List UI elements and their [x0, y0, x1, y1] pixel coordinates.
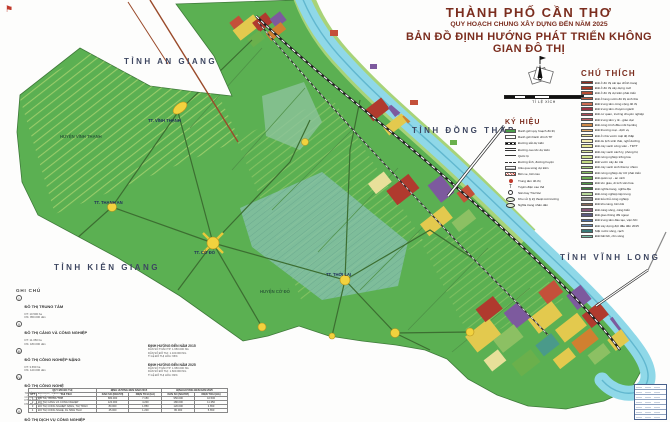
symbol-swatch-icon [505, 172, 516, 176]
symbol-item-label: Khu xử lý kỹ thuật môi trường [518, 197, 559, 201]
legend-item-label: Đất trung tâm y tế - giáo dục [595, 118, 634, 122]
legend-swatch [581, 81, 593, 85]
symbol-swatch-icon [505, 135, 516, 139]
table-row: 4 ĐÔ THỊ CÔNG NGHỆ, DL SINH THÁI 45.000 … [29, 409, 228, 413]
legend-item-label: Đất cây xanh cách ly, phòng hộ [595, 150, 638, 154]
legend-item-label: Đất ở đô thị cải tạo chỉnh trang [595, 81, 637, 85]
legend-swatch [581, 118, 593, 122]
legend-swatch [581, 144, 593, 148]
legend-item-label: Đất ở đô thị xây dựng mới [595, 86, 631, 90]
north-arrow-icon [508, 54, 572, 94]
legend-swatch [581, 86, 593, 90]
direction-block: ĐỊNH HƯỚNG ĐẾN NĂM 2025 DÂN SỐ TOÀN TP: … [148, 363, 236, 378]
legend-swatch [581, 197, 593, 201]
label-huyen-co-do: HUYỆN CỜ ĐỎ [260, 289, 291, 294]
legend-swatch [581, 208, 593, 212]
symbol-item-label: Quốc lộ [518, 154, 529, 158]
legend-item-label: Đất nông nghiệp trồng lúa [595, 155, 631, 159]
legend-swatch [581, 176, 593, 180]
legend-swatch [581, 182, 593, 186]
legend-item-label: Đất công nghiệp tập trung [595, 192, 631, 196]
map-title: BẢN ĐỒ ĐỊNH HƯỚNG PHÁT TRIỂN KHÔNG GIAN … [390, 31, 668, 55]
scale-bar-segments [504, 95, 584, 99]
direction-block: ĐỊNH HƯỚNG ĐẾN NĂM 2015 DÂN SỐ TOÀN TP: … [148, 344, 236, 359]
legend-swatch [581, 129, 593, 133]
legend-items: Đất ở đô thị cải tạo chỉnh trang Đất ở đ… [581, 80, 669, 239]
legend-item-label: Đất kho tàng, bến bãi [595, 202, 624, 206]
legend-item-label: Đất du lịch sinh thái, nghỉ dưỡng [595, 139, 640, 143]
note-numeral: II [16, 321, 22, 327]
label-tt-vinh-thanh: TT. VĨNH THẠNH [148, 118, 181, 123]
label-vinh-long: TỈNH VĨNH LONG [560, 253, 660, 262]
legend-item-label: Đất tôn giáo, di tích văn hóa [595, 181, 634, 185]
symbol-swatch-icon [505, 142, 516, 145]
symbol-item-label: Tuyến điện cao thế [518, 185, 544, 189]
label-tt-thanh-an: TT. THẠNH AN [94, 200, 123, 205]
direction-stats: DÂN SỐ TOÀN TP: 1.950.000 NG DÂN SỐ ĐÔ T… [148, 367, 236, 378]
legend-swatch [581, 187, 593, 191]
legend-item-label: Đất vườn cây ăn trái [595, 160, 623, 164]
direction-stats: DÂN SỐ TOÀN TP: 1.650.000 NG DÂN SỐ ĐÔ T… [148, 348, 236, 359]
symbol-items: Ranh giới quy hoạch đô thị Ranh giới hàn… [505, 128, 577, 208]
legend-swatch [581, 102, 593, 106]
legend-swatch [581, 235, 593, 239]
note-stats: DT: 11.350 ha DS: 180.000 dân [25, 339, 88, 346]
legend-item: Đất bãi bồi, cồn sông [581, 234, 669, 239]
compass-rose [508, 54, 572, 94]
symbol-swatch-icon [509, 179, 513, 183]
legend-item-label: Đất quân sự - an ninh [595, 176, 625, 180]
legend-item-label: Đất trung tâm chuyên ngành [595, 107, 634, 111]
legend-swatch [581, 224, 593, 228]
legend-swatch [581, 150, 593, 154]
note-title: ĐÔ THỊ CÔNG NGHIỆP NẶNG [25, 357, 81, 362]
note-numeral: III [16, 348, 22, 354]
note-title: ĐÔ THỊ CẢNG VÀ CÔNG NGHIỆP [25, 330, 88, 335]
symbol-item-label: Sân bay Trà Nóc [518, 191, 541, 195]
legend-item-label: Đất nghĩa trang, nghĩa địa [595, 187, 631, 191]
direction-blocks: ĐỊNH HƯỚNG ĐẾN NĂM 2015 DÂN SỐ TOÀN TP: … [148, 344, 236, 381]
legend-item-label: Đất trung tâm công cộng đô thị [595, 102, 637, 106]
note-numeral: V [16, 408, 22, 414]
legend-swatch [581, 219, 593, 223]
symbol-item-label: Đường sắt dự kiến [518, 141, 544, 145]
scale-bar: TỈ LỆ XÍCH [504, 95, 584, 104]
note-numeral: IV [16, 374, 22, 380]
legend-item-label: Đất trung tâm đào tạo, viện NC [595, 218, 638, 222]
title-block: THÀNH PHỐ CẦN THƠ QUY HOẠCH CHUNG XÂY DỰ… [390, 5, 668, 55]
symbol-item-label: Đường tỉnh, đường huyện [518, 160, 554, 164]
legend-item-label: Đất bãi bồi, cồn sông [595, 234, 624, 238]
planning-map-page: TỈNH AN GIANG TỈNH ĐỒNG THÁP TỈNH KIÊN G… [0, 0, 670, 422]
symbol-item-label: Đường cao tốc dự kiến [518, 148, 550, 152]
title-stamp-block [634, 384, 667, 420]
legend-item-label: Đất giao thông đối ngoại [595, 213, 629, 217]
legend-swatch [581, 160, 593, 164]
scale-label: TỈ LỆ XÍCH [504, 100, 584, 104]
symbol-swatch-icon [505, 155, 516, 156]
note-item: I ĐÔ THỊ TRUNG TÂM DT: 10.500 ha DS: 950… [16, 295, 146, 320]
legend-swatch [581, 229, 593, 233]
legend-swatch [581, 166, 593, 170]
legend-swatch [581, 155, 593, 159]
symbol-item-label: Bến xe, bến tàu [518, 172, 540, 176]
note-stats: DT: 10.500 ha DS: 950.000 dân [25, 313, 64, 320]
legend-item-label: Đất ở đô thị dự kiến phát triển [595, 91, 636, 95]
label-huyen-vinh-thanh: HUYỆN VĨNH THẠNH [60, 134, 102, 139]
symbol-item-label: Cầu qua sông dự kiến [518, 166, 548, 170]
note-item: III ĐÔ THỊ CÔNG NGHIỆP NẶNG DT: 3.650 ha… [16, 348, 146, 373]
legend-item-label: Đất thương mại - dịch vụ [595, 128, 629, 132]
legend-swatch [581, 107, 593, 111]
legend-item-label: Đất ở nhà vườn mật độ thấp [595, 134, 634, 138]
symbol-swatch-icon [508, 190, 513, 195]
legend-item-label: Đất ở làng vườn đô thị sinh thái [595, 97, 638, 101]
symbol-swatch-icon [505, 162, 516, 163]
notes-heading: GHI CHÚ [16, 288, 146, 293]
legend-item-label: Đất nông nghiệp dự trữ phát triển [595, 171, 641, 175]
label-tt-co-do: TT. CỜ ĐỎ [194, 250, 216, 255]
flag-icon: ⚑ [5, 4, 13, 15]
legend-swatch [581, 139, 593, 143]
note-title: ĐÔ THỊ DỊCH VỤ CÔNG NGHIỆP [25, 417, 86, 422]
symbol-swatch-icon [505, 129, 516, 133]
label-dong-thap: TỈNH ĐỒNG THÁP [412, 125, 516, 135]
symbol-item: Nghĩa trang nhân dân [505, 202, 577, 208]
symbol-item-label: Nghĩa trang nhân dân [518, 203, 548, 207]
symbols-heading: KÝ HIỆU [505, 119, 577, 126]
note-numeral: I [16, 295, 22, 301]
urban-scale-table: QUY MÔ ĐÔ THỊ ĐỊNH HƯỚNG ĐẾN NĂM 2015 ĐỊ… [28, 388, 228, 413]
legend-ky-hieu: KÝ HIỆU Ranh giới quy hoạch đô thị Ranh … [505, 119, 577, 208]
legend-item-label: Đất cơ quan, trường chuyên nghiệp [595, 112, 644, 116]
note-item: II ĐÔ THỊ CẢNG VÀ CÔNG NGHIỆP DT: 11.350… [16, 321, 146, 346]
legend-item-label: Mặt nước sông, rạch [595, 229, 624, 233]
symbol-swatch-icon [505, 148, 516, 151]
label-tt-thoi-lai: TT. THỚI LAI [326, 272, 351, 277]
legend-item-label: Đất cây xanh công viên - TDTT [595, 144, 638, 148]
note-title: ĐÔ THỊ TRUNG TÂM [25, 304, 64, 309]
legend-item-label: Đất công trình đầu mối hạ tầng [595, 123, 637, 127]
legend-swatch [581, 123, 593, 127]
legend-swatch [581, 213, 593, 217]
legend-item-label: Đất xây dựng đợt đầu đến 2015 [595, 224, 639, 228]
page-subtitle: QUY HOẠCH CHUNG XÂY DỰNG ĐẾN NĂM 2025 [390, 21, 668, 28]
symbol-swatch-icon [505, 185, 516, 189]
symbol-swatch-icon [506, 197, 515, 202]
symbol-item-label: Ranh giới quy hoạch đô thị [518, 129, 555, 133]
label-kien-giang: TỈNH KIÊN GIANG [54, 263, 160, 272]
note-stats: DT: 3.650 ha DS: 120.000 dân [25, 366, 81, 373]
legend-item-label: Đất cây xanh sinh thái tự nhiên [595, 165, 638, 169]
legend-swatch [581, 97, 593, 101]
legend-item-label: Đất tiểu thủ công nghiệp [595, 197, 629, 201]
legend-chu-thich: CHÚ THÍCH Đất ở đô thị cải tạo chỉnh tra… [581, 69, 669, 239]
symbol-swatch-icon [505, 166, 516, 170]
legend-swatch [581, 113, 593, 117]
page-title: THÀNH PHỐ CẦN THƠ [390, 5, 668, 20]
symbol-item-label: Trung tâm đô thị [518, 179, 540, 183]
label-an-giang: TỈNH AN GIANG [124, 57, 217, 66]
symbol-item-label: Ranh giới hành chính TP [518, 135, 552, 139]
legend-swatch [581, 192, 593, 196]
legend-swatch [581, 134, 593, 138]
legend-swatch [581, 203, 593, 207]
legend-heading: CHÚ THÍCH [581, 69, 669, 78]
legend-swatch [581, 91, 593, 95]
legend-item-label: Đất cảng sông, cảng biển [595, 208, 630, 212]
symbol-swatch-icon [506, 203, 515, 208]
legend-swatch [581, 171, 593, 175]
